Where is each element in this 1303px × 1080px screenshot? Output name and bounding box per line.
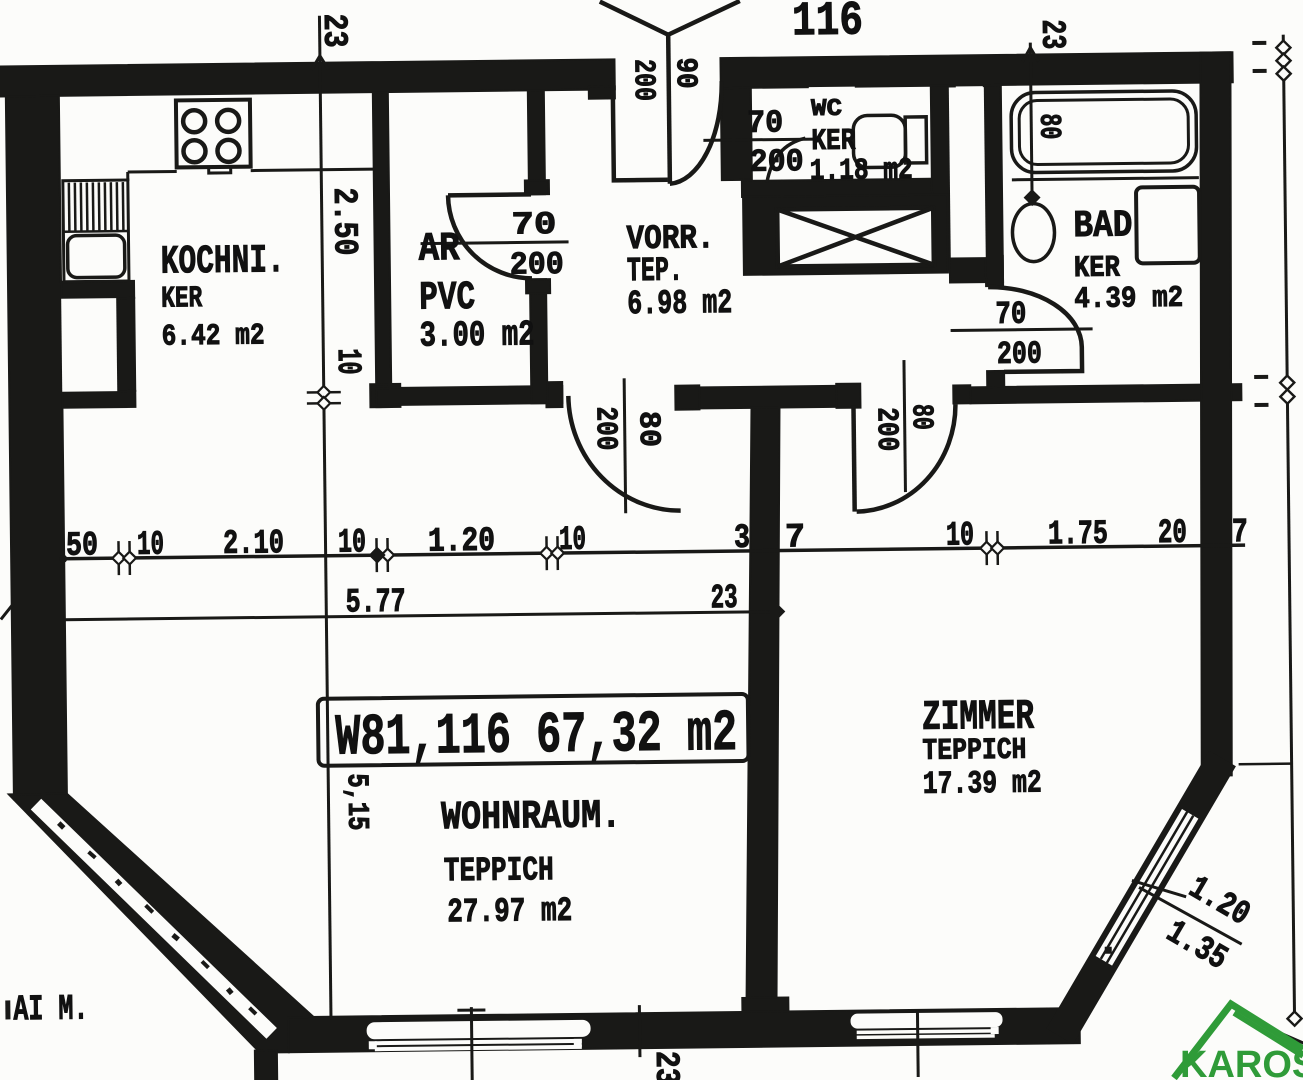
svg-text:AR: AR <box>418 227 460 272</box>
svg-text:90: 90 <box>667 57 701 88</box>
svg-text:5.77: 5.77 <box>345 584 405 623</box>
svg-text:2.50: 2.50 <box>324 187 363 255</box>
svg-text:AI M.: AI M. <box>13 989 88 1031</box>
svg-text:2.10: 2.10 <box>223 525 284 564</box>
svg-text:3.00 m2: 3.00 m2 <box>419 314 534 356</box>
svg-text:23: 23 <box>314 13 352 47</box>
svg-text:1.18 m2: 1.18 m2 <box>810 154 913 189</box>
svg-text:7: 7 <box>1232 514 1248 552</box>
svg-text:70: 70 <box>511 206 556 244</box>
svg-text:KOCHNI.: KOCHNI. <box>161 239 286 285</box>
svg-text:4.39 m2: 4.39 m2 <box>1074 282 1183 317</box>
svg-text:WOHNRAUM.: WOHNRAUM. <box>441 794 622 841</box>
svg-text:80: 80 <box>1031 113 1065 139</box>
svg-text:5,15: 5,15 <box>339 773 374 830</box>
svg-text:23: 23 <box>1032 19 1070 49</box>
svg-text:200: 200 <box>868 407 903 451</box>
svg-text:200: 200 <box>749 143 803 181</box>
svg-text:10: 10 <box>137 527 164 565</box>
svg-text:20: 20 <box>1158 515 1187 553</box>
svg-text:200: 200 <box>997 335 1042 373</box>
svg-text:80: 80 <box>631 411 665 447</box>
svg-text:6.98 m2: 6.98 m2 <box>627 285 732 324</box>
svg-text:50: 50 <box>66 527 98 565</box>
svg-text:3: 3 <box>734 520 750 558</box>
svg-text:BAD: BAD <box>1073 204 1132 248</box>
svg-text:KER: KER <box>161 282 202 316</box>
svg-text:WC: WC <box>811 96 842 123</box>
svg-text:80: 80 <box>903 404 937 430</box>
svg-text:KAROS: KAROS <box>1180 1044 1303 1080</box>
svg-text:TEPPICH: TEPPICH <box>922 734 1026 769</box>
svg-text:70: 70 <box>747 104 783 141</box>
svg-text:23: 23 <box>646 1051 684 1080</box>
svg-text:17.39 m2: 17.39 m2 <box>923 765 1042 803</box>
svg-text:10: 10 <box>328 348 366 374</box>
svg-text:70: 70 <box>995 296 1026 333</box>
svg-text:23: 23 <box>710 580 737 618</box>
svg-text:TEPPICH: TEPPICH <box>444 852 554 891</box>
svg-text:200: 200 <box>625 59 659 101</box>
svg-text:1.20: 1.20 <box>428 523 495 562</box>
svg-text:1.75: 1.75 <box>1048 516 1108 555</box>
svg-text:6.42 m2: 6.42 m2 <box>161 319 264 354</box>
svg-text:10: 10 <box>946 517 974 555</box>
svg-text:10: 10 <box>559 522 586 560</box>
svg-text:200: 200 <box>587 406 622 450</box>
svg-text:W81,116 67,32 m2: W81,116 67,32 m2 <box>335 702 738 772</box>
svg-text:7: 7 <box>785 519 805 557</box>
svg-text:116: 116 <box>792 0 864 49</box>
svg-text:10: 10 <box>338 524 366 562</box>
svg-text:27.97 m2: 27.97 m2 <box>447 893 572 932</box>
svg-text:200: 200 <box>510 246 564 284</box>
svg-text:KER: KER <box>1074 252 1120 287</box>
